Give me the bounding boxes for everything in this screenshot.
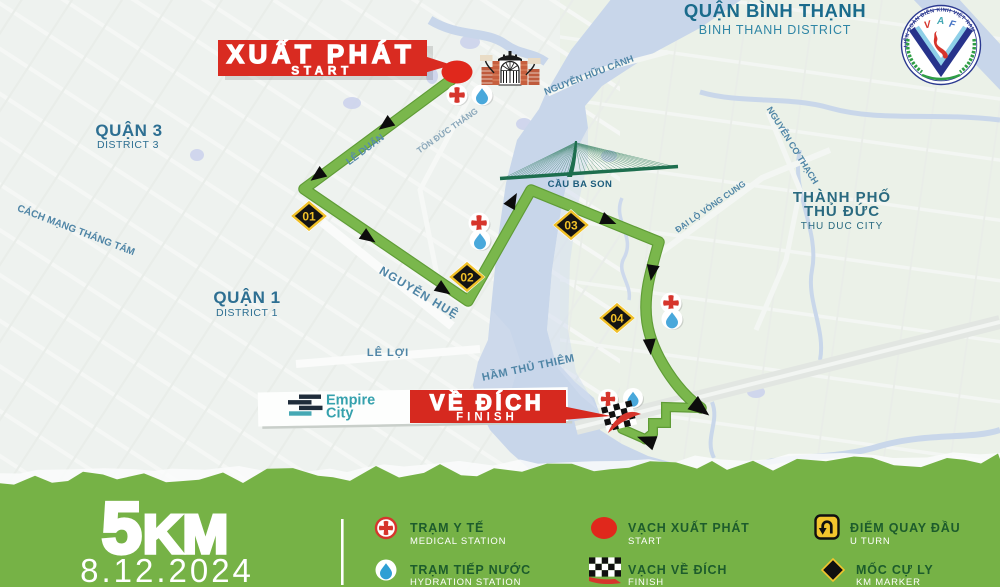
svg-text:VẠCH VỀ ĐÍCH: VẠCH VỀ ĐÍCH [628, 562, 727, 577]
svg-text:LÊ LỢI: LÊ LỢI [367, 346, 409, 359]
svg-text:FINISH: FINISH [628, 577, 664, 587]
svg-text:FINISH: FINISH [456, 412, 518, 424]
svg-text:QUẬN 1: QUẬN 1 [213, 288, 280, 307]
svg-text:DISTRICT 1: DISTRICT 1 [216, 307, 278, 319]
svg-text:TRẠM TIẾP NƯỚC: TRẠM TIẾP NƯỚC [410, 562, 531, 577]
svg-text:KM MARKER: KM MARKER [856, 577, 921, 587]
svg-text:U TURN: U TURN [850, 536, 891, 547]
svg-text:City: City [326, 406, 353, 422]
svg-text:MỐC CỰ LY: MỐC CỰ LY [856, 562, 934, 577]
svg-text:VẠCH XUẤT PHÁT: VẠCH XUẤT PHÁT [628, 520, 750, 535]
svg-text:8.12.2024: 8.12.2024 [80, 552, 254, 587]
svg-text:03: 03 [564, 219, 578, 233]
svg-text:HYDRATION STATION: HYDRATION STATION [410, 577, 521, 587]
svg-text:BINH THANH DISTRICT: BINH THANH DISTRICT [699, 23, 851, 37]
svg-text:A: A [936, 16, 944, 27]
svg-text:MEDICAL STATION: MEDICAL STATION [410, 536, 506, 547]
svg-text:START: START [291, 64, 353, 78]
svg-text:THỦ ĐỨC: THỦ ĐỨC [804, 202, 880, 220]
svg-text:02: 02 [460, 271, 474, 285]
svg-text:DISTRICT 3: DISTRICT 3 [97, 139, 159, 151]
svg-text:QUẬN 3: QUẬN 3 [95, 121, 162, 140]
svg-text:TRẠM Y TẾ: TRẠM Y TẾ [410, 520, 484, 535]
svg-text:ĐIỂM QUAY ĐẦU: ĐIỂM QUAY ĐẦU [850, 520, 960, 535]
svg-text:04: 04 [610, 312, 624, 326]
svg-text:QUẬN BÌNH THẠNH: QUẬN BÌNH THẠNH [684, 0, 866, 21]
svg-text:START: START [628, 536, 662, 547]
svg-text:CẦU BA SON: CẦU BA SON [548, 179, 613, 190]
svg-text:THU DUC CITY: THU DUC CITY [801, 221, 884, 232]
svg-text:01: 01 [302, 210, 316, 224]
